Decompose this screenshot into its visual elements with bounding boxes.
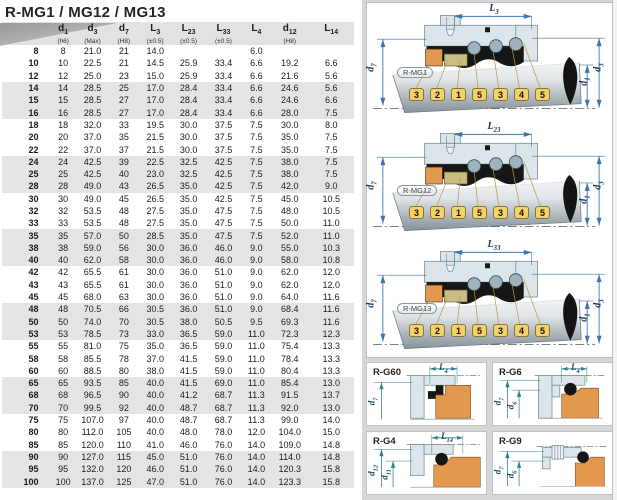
size-cell: 16	[2, 106, 51, 118]
value-cell: 7.5	[308, 168, 354, 180]
value-cell: 33.4	[205, 82, 241, 94]
value-cell: 35.0	[271, 131, 308, 143]
value-cell: 5.6	[308, 82, 354, 94]
model-label: R-MG13	[397, 303, 437, 314]
value-cell: 40.0	[139, 414, 172, 426]
value-cell: 59.0	[205, 352, 241, 364]
value-cell: 13.7	[308, 389, 354, 401]
value-cell: 49.0	[76, 193, 109, 205]
value-cell: 90	[51, 451, 76, 463]
value-cell: 14.0	[242, 439, 271, 451]
dim-label-l14: L14	[441, 431, 453, 444]
value-cell: 27.5	[139, 217, 172, 229]
value-cell: 132.0	[76, 463, 109, 475]
value-cell: 68.7	[205, 389, 241, 401]
column-header-d7: d7(H8)	[109, 22, 138, 45]
dim-label-d1: d1	[579, 189, 592, 211]
dim-label-l3: L3	[463, 3, 525, 16]
value-cell: 30.0	[139, 254, 172, 266]
table-row: 686896.59040.041.268.711.391.513.7	[2, 389, 354, 401]
value-cell: 40.0	[139, 402, 172, 414]
value-cell: 32.5	[172, 168, 205, 180]
value-cell: 11.0	[242, 340, 271, 352]
value-cell: 10	[51, 57, 76, 69]
value-cell: 68.7	[205, 402, 241, 414]
value-cell: 7.5	[308, 131, 354, 143]
table-body: 8821.02114.06.0101022.52114.525.933.46.6…	[2, 45, 354, 488]
table-row: 101022.52114.525.933.46.619.26.6	[2, 57, 354, 69]
value-cell: 85	[51, 439, 76, 451]
value-cell: 9.0	[308, 180, 354, 192]
value-cell: 137.0	[76, 475, 109, 487]
value-cell: 53	[51, 328, 76, 340]
value-cell: 11.0	[242, 377, 271, 389]
value-cell: 40.0	[139, 426, 172, 438]
value-cell: 38.0	[139, 365, 172, 377]
value-cell: 49.0	[76, 180, 109, 192]
value-cell: 68.0	[76, 291, 109, 303]
value-cell	[271, 45, 308, 57]
table-row: 252542.54023.032.542.57.538.07.5	[2, 168, 354, 180]
value-cell: 22.5	[76, 57, 109, 69]
value-cell: 38.0	[271, 156, 308, 168]
value-cell: 45	[109, 193, 138, 205]
value-cell: 80.4	[271, 365, 308, 377]
value-cell: 7.5	[242, 119, 271, 131]
size-cell: 12	[2, 70, 51, 82]
value-cell: 15	[51, 94, 76, 106]
value-cell: 20	[51, 131, 76, 143]
value-cell: 115	[109, 451, 138, 463]
value-cell: 21.0	[76, 45, 109, 57]
value-cell: 37.5	[205, 143, 241, 155]
table-row: 333353.54827.535.047.57.550.011.0	[2, 217, 354, 229]
dimension-table-panel: R-MG1 / MG12 / MG13 d1(h6) d3(Max) d7(H8…	[0, 0, 362, 500]
dim-label-l4: L4	[439, 362, 448, 375]
value-cell: 6.6	[308, 57, 354, 69]
table-row: 242442.53922.532.542.57.538.07.5	[2, 156, 354, 168]
value-cell: 27	[109, 106, 138, 118]
value-cell: 7.5	[242, 229, 271, 241]
table-row: 434365.56130.036.051.09.062.012.0	[2, 279, 354, 291]
value-cell: 110	[109, 439, 138, 451]
column-header-d3: d3(Max)	[76, 22, 109, 45]
value-cell: 51.0	[205, 279, 241, 291]
table-header: d1(h6) d3(Max) d7(H8) L3(±0.5) L23(±0.5)…	[2, 22, 354, 45]
table-row: 222237.03721.530.037.57.535.07.5	[2, 143, 354, 155]
size-cell: 55	[2, 340, 51, 352]
value-cell: 17.0	[139, 106, 172, 118]
value-cell: 24.6	[271, 94, 308, 106]
value-cell: 33.4	[205, 94, 241, 106]
value-cell: 9.0	[242, 291, 271, 303]
table-row: 323253.54827.535.047.57.548.010.5	[2, 205, 354, 217]
value-cell: 28.4	[172, 106, 205, 118]
seat-diagram-r-g9: R-G9 d7 d6	[492, 431, 613, 495]
column-header-d1: d1(h6)	[51, 22, 76, 45]
value-cell: 33.4	[205, 106, 241, 118]
value-cell: 120.3	[271, 463, 308, 475]
value-cell: 7.5	[242, 217, 271, 229]
value-cell: 33.4	[205, 70, 241, 82]
part-number-tag: 3	[493, 324, 508, 337]
value-cell: 43	[109, 180, 138, 192]
value-cell: 50.0	[271, 217, 308, 229]
value-cell: 28.5	[76, 106, 109, 118]
value-cell: 46.0	[172, 439, 205, 451]
value-cell: 21.5	[139, 143, 172, 155]
part-number-tags: 3 2 1 5 3 4 5	[409, 206, 550, 219]
dim-label-d3: d3	[593, 293, 606, 315]
value-cell: 24	[51, 156, 76, 168]
value-cell: 25.9	[172, 57, 205, 69]
value-cell: 11.0	[242, 328, 271, 340]
value-cell: 11.6	[308, 303, 354, 315]
value-cell: 15.8	[308, 463, 354, 475]
value-cell: 59.0	[205, 328, 241, 340]
value-cell: 32.0	[76, 119, 109, 131]
table-row: 424265.56130.036.051.09.062.012.0	[2, 266, 354, 278]
value-cell: 33	[51, 217, 76, 229]
value-cell: 78	[109, 352, 138, 364]
value-cell: 46.0	[205, 242, 241, 254]
value-cell: 28	[51, 180, 76, 192]
table-row: 555581.07535.036.559.011.075.413.3	[2, 340, 354, 352]
value-cell: 97	[109, 414, 138, 426]
value-cell: 75	[51, 414, 76, 426]
size-cell: 15	[2, 94, 51, 106]
seat-diagram-r-g6: R-G6 L4 d7 d6	[492, 362, 613, 426]
value-cell: 109.0	[271, 439, 308, 451]
value-cell: 65.5	[76, 279, 109, 291]
size-cell: 60	[2, 365, 51, 377]
value-cell: 9.5	[242, 316, 271, 328]
part-number-tags: 3 2 1 5 3 4 5	[409, 324, 550, 337]
seat-diagram-r-g4: R-G4 L14 d12 d11	[366, 431, 487, 495]
value-cell: 40	[109, 168, 138, 180]
size-cell: 18	[2, 119, 51, 131]
seal-cross-section-drawing	[367, 3, 612, 121]
value-cell: 47.0	[139, 475, 172, 487]
table-row: 181832.03319.530.037.57.530.08.0	[2, 119, 354, 131]
value-cell: 32.5	[172, 156, 205, 168]
model-label: R-MG12	[397, 185, 437, 196]
value-cell: 42.5	[205, 156, 241, 168]
value-cell: 37.0	[76, 131, 109, 143]
value-cell: 35	[51, 229, 76, 241]
value-cell: 42.5	[76, 168, 109, 180]
value-cell: 88.5	[76, 365, 109, 377]
value-cell: 27.5	[139, 205, 172, 217]
value-cell: 7.5	[242, 205, 271, 217]
table-row: 202037.03521.530.037.57.535.07.5	[2, 131, 354, 143]
dim-label-d12: d12	[367, 461, 380, 479]
value-cell: 37.5	[205, 131, 241, 143]
value-cell: 59.0	[76, 242, 109, 254]
value-cell: 70	[51, 402, 76, 414]
value-cell: 68.4	[271, 303, 308, 315]
value-cell: 14	[51, 82, 76, 94]
dim-label-l33: L33	[463, 239, 525, 252]
value-cell: 91.5	[271, 389, 308, 401]
value-cell: 17.0	[139, 82, 172, 94]
value-cell: 47.5	[205, 217, 241, 229]
value-cell: 48.0	[172, 426, 205, 438]
dim-label-d7: d7	[493, 392, 506, 410]
table-row: 404062.05830.036.046.09.058.010.8	[2, 254, 354, 266]
dim-label-d7: d7	[366, 57, 379, 79]
table-row: 8080112.010540.048.078.012.0104.015.0	[2, 426, 354, 438]
value-cell: 30.0	[172, 131, 205, 143]
value-cell: 12.3	[308, 328, 354, 340]
size-cell: 65	[2, 377, 51, 389]
value-cell: 7.5	[308, 143, 354, 155]
value-cell: 35.0	[172, 229, 205, 241]
value-cell: 85.5	[76, 352, 109, 364]
value-cell: 36.0	[172, 279, 205, 291]
value-cell: 64.0	[271, 291, 308, 303]
value-cell: 26.5	[139, 180, 172, 192]
value-cell: 127.0	[76, 451, 109, 463]
part-number-tag: 4	[514, 206, 529, 219]
value-cell: 21.6	[271, 70, 308, 82]
value-cell: 33	[109, 119, 138, 131]
value-cell: 96.5	[76, 389, 109, 401]
table-row: 151528.52717.028.433.46.624.66.6	[2, 94, 354, 106]
column-header-size	[2, 22, 51, 45]
part-number-tag: 2	[430, 206, 445, 219]
page-title: R-MG1 / MG12 / MG13	[0, 0, 362, 22]
value-cell: 75	[109, 340, 138, 352]
size-cell: 20	[2, 131, 51, 143]
value-cell: 38.0	[271, 168, 308, 180]
value-cell: 8	[51, 45, 76, 57]
value-cell: 39	[109, 156, 138, 168]
value-cell: 76.0	[205, 475, 241, 487]
catalog-page: R-MG1 / MG12 / MG13 d1(h6) d3(Max) d7(H8…	[0, 0, 617, 500]
value-cell: 51.0	[205, 303, 241, 315]
value-cell: 25	[51, 168, 76, 180]
part-number-tag: 5	[472, 324, 487, 337]
value-cell: 36.0	[172, 291, 205, 303]
value-cell: 10.3	[308, 242, 354, 254]
table-row: 535378.57333.036.559.011.072.312.3	[2, 328, 354, 340]
column-header-l33: L33(±0.5)	[205, 22, 241, 45]
dim-label-l4: L4	[571, 362, 580, 375]
value-cell: 114.0	[271, 451, 308, 463]
value-cell: 14.0	[308, 414, 354, 426]
value-cell: 40	[51, 254, 76, 266]
value-cell: 95	[51, 463, 76, 475]
part-number-tag: 3	[409, 88, 424, 101]
value-cell: 35	[109, 131, 138, 143]
value-cell: 65	[51, 377, 76, 389]
value-cell: 45.0	[271, 193, 308, 205]
table-row: 707099.59240.048.768.711.392.013.0	[2, 402, 354, 414]
value-cell: 25.9	[172, 70, 205, 82]
value-cell: 99.5	[76, 402, 109, 414]
part-number-tag: 4	[514, 324, 529, 337]
value-cell: 76.0	[205, 451, 241, 463]
value-cell: 30.0	[172, 143, 205, 155]
model-label: R-MG1	[397, 67, 433, 78]
value-cell: 74.0	[76, 316, 109, 328]
seal-diagram-r-mg1: L3 d7 d1 d3 R-MG1 3 2 1 5 3 4 5	[367, 3, 612, 121]
value-cell: 30.5	[139, 316, 172, 328]
value-cell: 35.0	[172, 205, 205, 217]
value-cell: 13.0	[308, 402, 354, 414]
value-cell: 78.4	[271, 352, 308, 364]
value-cell: 21	[109, 57, 138, 69]
value-cell: 16	[51, 106, 76, 118]
value-cell: 11.3	[242, 402, 271, 414]
value-cell: 7.5	[242, 180, 271, 192]
value-cell: 46.0	[139, 463, 172, 475]
value-cell: 72.3	[271, 328, 308, 340]
value-cell: 120	[109, 463, 138, 475]
value-cell: 13.3	[308, 340, 354, 352]
part-number-tag: 3	[409, 324, 424, 337]
value-cell: 42.0	[271, 180, 308, 192]
value-cell: 35.0	[172, 180, 205, 192]
size-cell: 42	[2, 266, 51, 278]
value-cell: 51.0	[172, 463, 205, 475]
value-cell: 30	[51, 193, 76, 205]
value-cell: 8.0	[308, 119, 354, 131]
value-cell: 6.0	[242, 45, 271, 57]
dim-label-d7: d7	[366, 293, 379, 315]
value-cell: 112.0	[76, 426, 109, 438]
value-cell: 59.0	[205, 340, 241, 352]
dim-label-d1: d1	[579, 307, 592, 329]
value-cell: 14.8	[308, 451, 354, 463]
value-cell: 65.5	[76, 266, 109, 278]
table-row: 9090127.011545.051.076.014.0114.014.8	[2, 451, 354, 463]
value-cell: 80	[109, 365, 138, 377]
value-cell: 53.5	[76, 205, 109, 217]
value-cell: 7.5	[308, 106, 354, 118]
value-cell: 35.0	[139, 340, 172, 352]
value-cell: 19.2	[271, 57, 308, 69]
seat-detail-grid: R-G60 L4 d7	[366, 362, 613, 496]
part-number-tag: 1	[451, 206, 466, 219]
value-cell: 63	[109, 291, 138, 303]
value-cell: 55	[51, 340, 76, 352]
seal-diagram-r-mg12: L23 d7 d1 d3 R-MG12 3 2 1 5 3 4 5	[367, 121, 612, 239]
value-cell: 42.5	[76, 156, 109, 168]
value-cell: 50.5	[205, 316, 241, 328]
value-cell: 30.0	[172, 119, 205, 131]
value-cell: 22.5	[139, 156, 172, 168]
value-cell: 21.5	[139, 131, 172, 143]
value-cell: 13.3	[308, 352, 354, 364]
value-cell: 52.0	[271, 229, 308, 241]
value-cell: 13.0	[308, 377, 354, 389]
size-cell: 80	[2, 426, 51, 438]
value-cell: 30.0	[139, 291, 172, 303]
value-cell: 46.0	[205, 254, 241, 266]
value-cell: 28.5	[76, 82, 109, 94]
value-cell: 36.5	[172, 328, 205, 340]
size-cell: 38	[2, 242, 51, 254]
value-cell: 70.5	[76, 303, 109, 315]
value-cell: 36.0	[172, 266, 205, 278]
value-cell: 37.0	[76, 143, 109, 155]
value-cell: 28.4	[172, 94, 205, 106]
value-cell: 75.4	[271, 340, 308, 352]
value-cell: 45.0	[139, 451, 172, 463]
diagram-panel: L3 d7 d1 d3 R-MG1 3 2 1 5 3 4 5 L23 d7	[362, 0, 617, 500]
table-row: 454568.06330.036.051.09.064.011.6	[2, 291, 354, 303]
part-number-tag: 1	[451, 88, 466, 101]
table-row: 282849.04326.535.042.57.542.09.0	[2, 180, 354, 192]
value-cell: 41.2	[172, 389, 205, 401]
value-cell: 51.0	[172, 475, 205, 487]
size-cell: 14	[2, 82, 51, 94]
value-cell: 41.5	[172, 377, 205, 389]
value-cell: 10.8	[308, 254, 354, 266]
value-cell: 42.5	[205, 193, 241, 205]
value-cell: 11.6	[308, 316, 354, 328]
table-row: 100100137.012547.051.076.014.0123.315.8	[2, 475, 354, 487]
value-cell: 7.5	[242, 131, 271, 143]
size-cell: 40	[2, 254, 51, 266]
value-cell: 14.5	[139, 57, 172, 69]
column-header-l14: L14	[308, 22, 354, 45]
value-cell: 51.0	[172, 451, 205, 463]
table-row: 9595132.012046.051.076.014.0120.315.8	[2, 463, 354, 475]
value-cell: 11.3	[242, 389, 271, 401]
value-cell: 58	[51, 352, 76, 364]
value-cell: 92	[109, 402, 138, 414]
seat-model-label: R-G9	[499, 436, 522, 447]
dim-label-d11: d11	[380, 465, 393, 483]
column-header-l23: L23(±0.5)	[172, 22, 205, 45]
value-cell: 17.0	[139, 94, 172, 106]
value-cell: 12	[51, 70, 76, 82]
page-edge-decoration	[612, 0, 617, 500]
value-cell: 11.0	[242, 352, 271, 364]
size-cell: 50	[2, 316, 51, 328]
seal-diagram-r-mg13: L33 d7 d1 d3 R-MG13 3 2 1 5 3 4 5	[367, 239, 612, 357]
value-cell: 26.5	[139, 193, 172, 205]
column-header-d12: d12(H8)	[271, 22, 308, 45]
value-cell: 14.8	[308, 439, 354, 451]
table-row: 161628.52717.028.433.46.628.07.5	[2, 106, 354, 118]
value-cell: 33.4	[205, 57, 241, 69]
value-cell: 66	[109, 303, 138, 315]
value-cell: 104.0	[271, 426, 308, 438]
value-cell: 14.0	[139, 45, 172, 57]
size-cell: 35	[2, 229, 51, 241]
value-cell: 6.6	[242, 82, 271, 94]
size-cell: 45	[2, 291, 51, 303]
value-cell: 6.6	[242, 94, 271, 106]
size-cell: 100	[2, 475, 51, 487]
value-cell: 68	[51, 389, 76, 401]
value-cell: 99.0	[271, 414, 308, 426]
value-cell: 36.0	[172, 242, 205, 254]
value-cell: 43	[51, 279, 76, 291]
value-cell: 68.7	[205, 414, 241, 426]
seal-cross-section-drawing	[367, 239, 612, 357]
dim-label-d7: d7	[493, 461, 506, 479]
value-cell: 12.0	[308, 279, 354, 291]
table-row: 585885.57837.041.559.011.078.413.3	[2, 352, 354, 364]
part-number-tag: 2	[430, 324, 445, 337]
size-cell: 95	[2, 463, 51, 475]
value-cell: 58.0	[271, 254, 308, 266]
